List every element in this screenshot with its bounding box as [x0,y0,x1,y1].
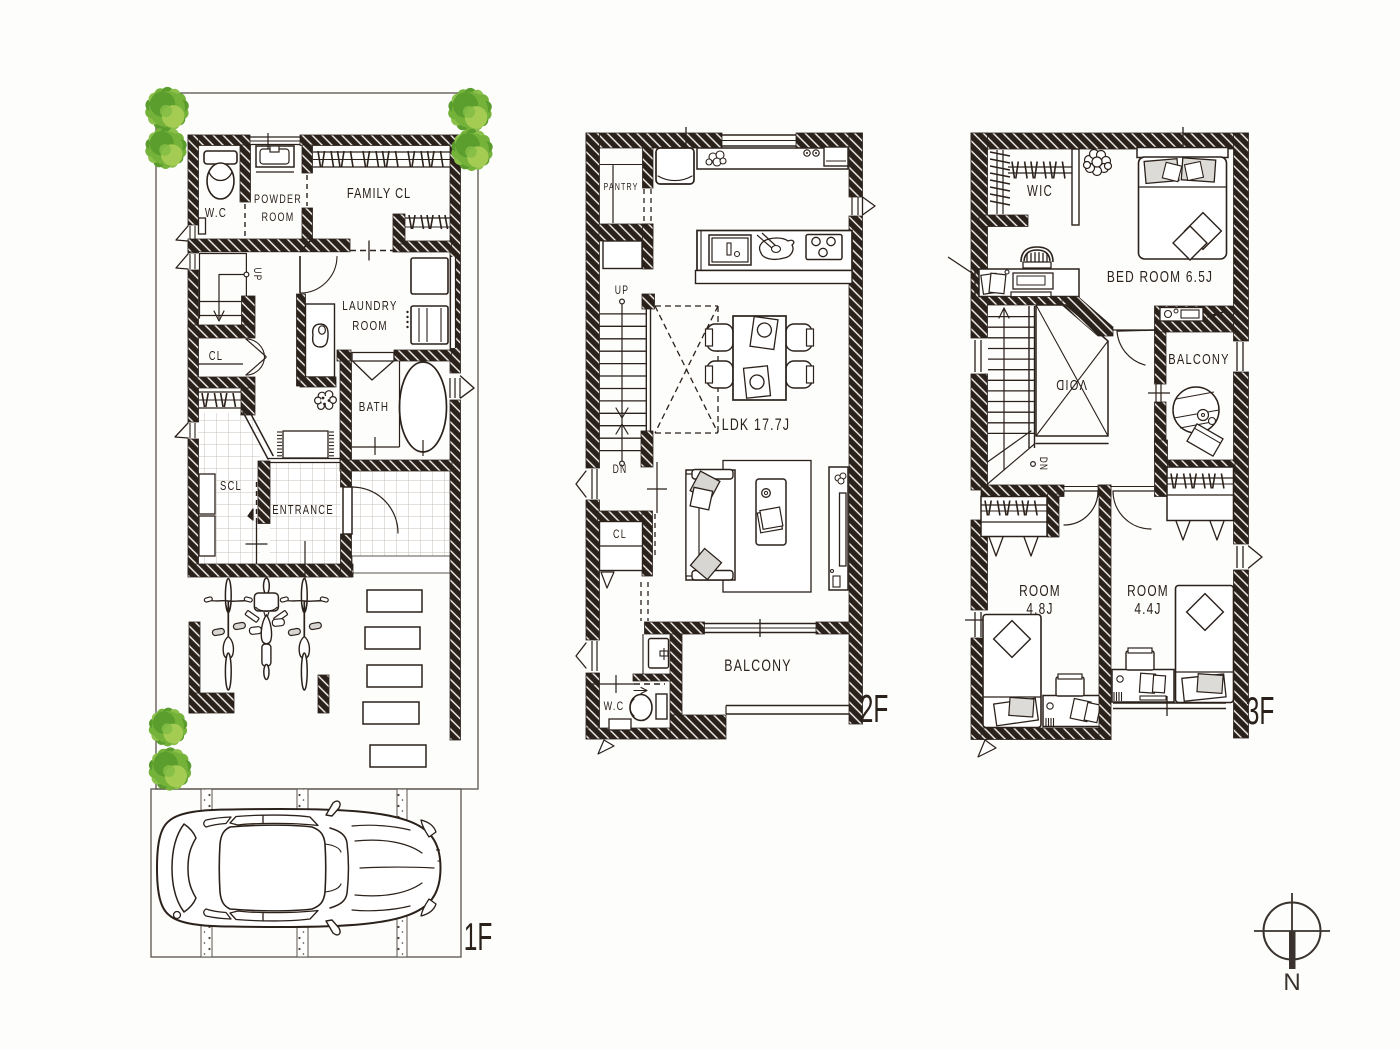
svg-text:ROOM: ROOM [1019,581,1061,599]
svg-text:BALCONY: BALCONY [724,657,791,675]
svg-text:LAUNDRY: LAUNDRY [342,299,397,314]
svg-text:DN: DN [1037,457,1049,471]
svg-text:FAMILY CL: FAMILY CL [347,184,411,201]
svg-text:ROOM: ROOM [262,211,295,225]
svg-text:4.4J: 4.4J [1134,599,1161,617]
svg-text:BATH: BATH [359,400,389,415]
svg-text:2F: 2F [860,686,889,730]
svg-text:ROOM: ROOM [352,319,387,334]
svg-text:CL: CL [613,528,627,542]
svg-text:3F: 3F [1246,688,1275,732]
svg-text:PANTRY: PANTRY [604,181,639,193]
svg-text:BALCONY: BALCONY [1168,350,1229,367]
svg-text:ENTRANCE: ENTRANCE [272,504,334,518]
svg-text:UP: UP [615,285,629,297]
svg-text:W.C: W.C [205,206,227,221]
svg-text:POWDER: POWDER [254,193,302,207]
svg-text:DN: DN [613,464,628,476]
svg-text:SCL: SCL [220,480,242,494]
svg-text:UP: UP [251,268,263,282]
svg-text:N: N [1283,969,1300,996]
svg-text:ROOM: ROOM [1127,581,1169,599]
svg-text:CL: CL [209,350,224,364]
svg-text:W.C: W.C [604,700,625,714]
svg-text:WIC: WIC [1027,182,1053,199]
svg-text:BED ROOM 6.5J: BED ROOM 6.5J [1107,267,1213,285]
svg-text:LDK 17.7J: LDK 17.7J [722,416,790,434]
svg-text:VOID: VOID [1055,377,1087,394]
svg-text:1F: 1F [464,914,493,958]
